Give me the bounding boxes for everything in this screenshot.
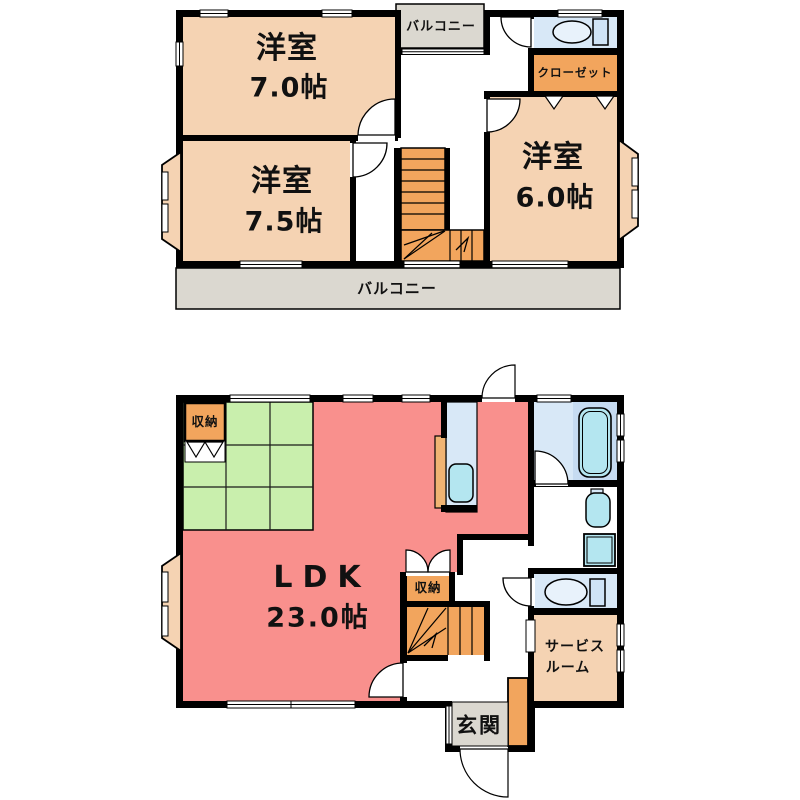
entrance-label: 玄関 [456, 716, 502, 737]
storage-west-label: 収納 [191, 416, 218, 429]
room-6-0-size: 6.0帖 [516, 185, 595, 212]
service-room-floor [534, 615, 617, 701]
ldk-name: LDK [273, 563, 370, 593]
floorplan-canvas: 洋室 7.0帖 洋室 7.5帖 洋室 6.0帖 バルコニー クローゼット バルコ… [0, 0, 800, 800]
toilet-icon [553, 19, 608, 45]
ldk-size: 23.0帖 [266, 605, 370, 632]
room-7-0-size: 7.0帖 [250, 75, 329, 102]
room-7-0-name: 洋室 [256, 34, 318, 64]
storage-stairs-label: 収納 [414, 582, 441, 595]
room-7-5-name: 洋室 [251, 167, 313, 197]
door-arc-toilet1f [503, 578, 531, 606]
door-arc-room75 [353, 143, 387, 177]
toilet-icon [545, 579, 605, 606]
washing-machine-icon [584, 534, 615, 566]
floorplan-drawing [0, 0, 800, 800]
balcony-top-label: バルコニー [406, 21, 476, 34]
room-6-0-name: 洋室 [522, 143, 584, 173]
closet-label: クローゼット [538, 67, 613, 79]
door-arc-backdoor [482, 365, 515, 398]
stairs-1f [406, 607, 484, 655]
door-arc-toilet2f [501, 17, 531, 47]
door-service-room [526, 620, 535, 652]
room-7-5-size: 7.5帖 [245, 209, 324, 236]
bathtub-icon [579, 408, 611, 477]
balcony-bottom-label: バルコニー [357, 282, 437, 297]
kitchen-sink [449, 464, 473, 502]
door-arc-entrance [460, 749, 508, 797]
service-room-label-1: サービス [545, 640, 605, 654]
bay-window-ldk [162, 553, 181, 651]
washbasin-icon [586, 489, 610, 527]
shoe-cabinet [508, 678, 528, 746]
bay-window-east [619, 140, 638, 240]
bay-window-west [162, 152, 181, 252]
floor1-plan [162, 365, 624, 797]
room-7-5-floor [183, 141, 350, 261]
service-room-label-2: ルーム [546, 661, 591, 675]
stairs-2f [401, 148, 484, 261]
